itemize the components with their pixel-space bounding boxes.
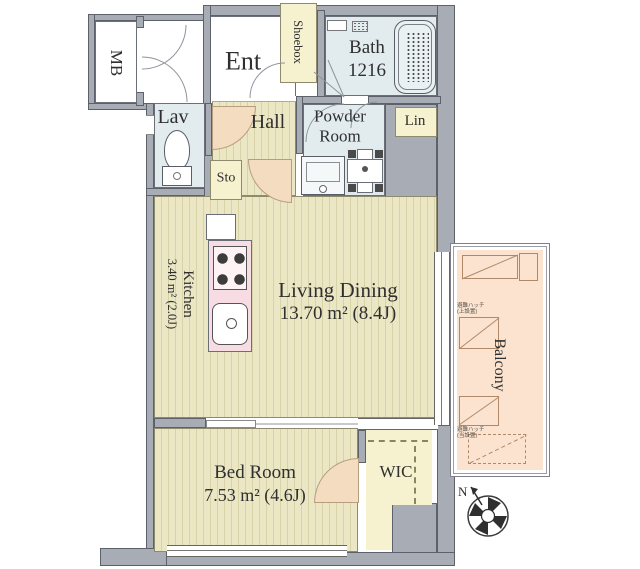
wall-mb-top	[88, 14, 210, 21]
label-living-dining: Living Dining 13.70 m² (8.4J)	[278, 278, 398, 326]
bathtub-jets	[406, 32, 429, 82]
vanity-corner-tr	[375, 150, 383, 158]
lav-window	[146, 115, 154, 135]
wic-rod-right	[414, 446, 416, 504]
bath-counter	[327, 20, 347, 31]
label-hatch-upper: 避難ハッチ (上設置)	[457, 303, 485, 316]
north-arrowhead	[471, 487, 478, 495]
balcony-planter	[462, 255, 518, 279]
label-powder-room: Powder Room	[314, 107, 366, 148]
wall-lav-bottom	[146, 188, 210, 196]
mb-door-arc-bottom	[142, 57, 187, 102]
label-bed-room: Bed Room 7.53 m² (4.6J)	[204, 462, 305, 506]
stove	[213, 246, 247, 290]
wall-left-main	[146, 103, 154, 555]
label-wic: WIC	[379, 462, 412, 482]
bed-ld-sliding-door	[206, 420, 256, 428]
vanity-corner-tl	[348, 150, 356, 158]
label-shoebox: Shoebox	[291, 20, 305, 64]
balcony-planter-small	[519, 253, 538, 281]
wall-mb-left	[88, 14, 95, 110]
balcony-hatch-lower	[459, 396, 499, 426]
kitchen-faucet	[226, 318, 237, 329]
compass-circle	[468, 496, 508, 536]
bedroom-window	[167, 545, 347, 557]
wall-wic-step	[392, 503, 437, 553]
wic-top-band	[358, 418, 438, 430]
label-ent: Ent	[225, 45, 261, 76]
compass-rose: N	[458, 484, 508, 536]
wall-hall-powder	[296, 96, 303, 154]
wall-bath-left	[317, 10, 325, 105]
north-label: N	[458, 484, 468, 499]
vanity-corner-bl	[348, 184, 356, 192]
wall-right-upper	[437, 5, 455, 255]
label-balcony: Balcony	[490, 338, 508, 391]
genkan-step	[212, 96, 296, 102]
label-bath: Bath 1216	[348, 37, 386, 83]
label-sto: Sto	[217, 171, 236, 188]
north-arrow	[471, 487, 482, 505]
washer-pan-inner	[306, 162, 340, 182]
compass-center	[482, 510, 495, 523]
bath-shower-head	[352, 21, 368, 32]
wall-bath-bottom-r	[368, 96, 441, 104]
washer-drain	[319, 185, 327, 193]
wall-top-main	[203, 5, 455, 16]
wall-mb-stub-top	[136, 16, 144, 28]
room-wic-lower	[366, 505, 392, 550]
label-lav: Lav	[157, 105, 188, 129]
wall-mb-stub-bottom	[136, 92, 144, 106]
wall-wic-left	[358, 430, 366, 463]
wall-mb-bottom	[88, 103, 154, 110]
wic-rod-top	[368, 440, 428, 442]
wall-ent-left	[203, 5, 211, 105]
label-hatch-lower: 避難ハッチ (当設置)	[457, 427, 485, 440]
vanity-corner-br	[375, 184, 383, 192]
wall-lav-hall	[205, 103, 212, 163]
floor-plan-canvas: N MB Ent Shoebox Bath 1216 Lav Hall Sto …	[0, 0, 640, 569]
balcony-sliding-window	[434, 252, 450, 425]
wall-bed-ld	[154, 418, 206, 428]
mb-door-arc-top	[142, 25, 186, 69]
label-mb: MB	[106, 50, 126, 76]
toilet-button	[173, 172, 181, 180]
fridge-space	[206, 214, 236, 240]
label-lin: Lin	[405, 112, 426, 130]
label-hall: Hall	[251, 110, 285, 134]
toilet-bowl	[164, 130, 190, 170]
vanity-drain	[362, 166, 368, 172]
compass-pinwheel	[469, 497, 507, 535]
label-kitchen: Kitchen 3.40 m² (2.0J)	[164, 259, 196, 329]
